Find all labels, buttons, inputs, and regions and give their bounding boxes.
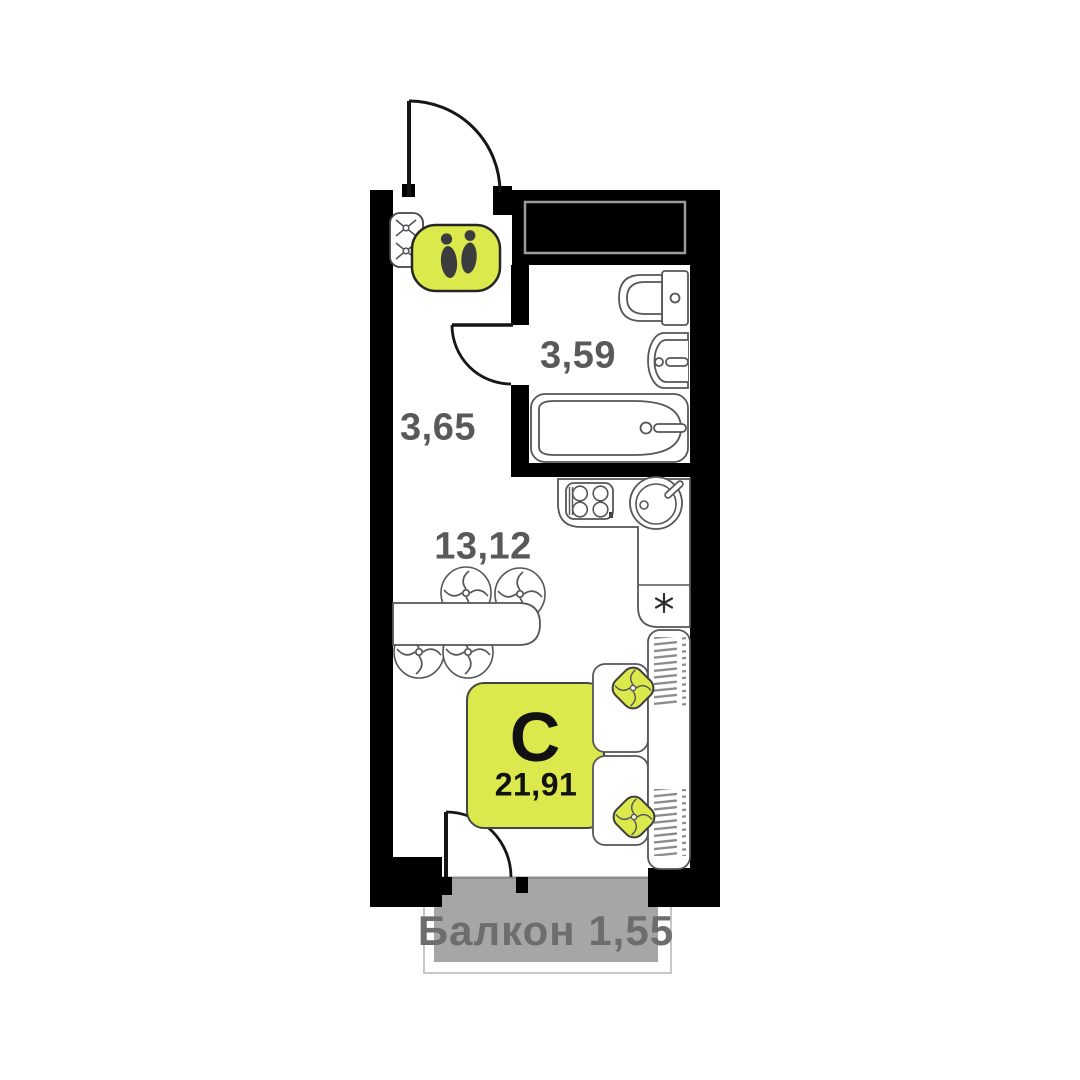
wall-left [370,190,393,857]
stove [566,483,613,519]
balcony-area-label: Балкон 1,55 [418,907,674,955]
hallway-area-label: 3,65 [400,407,476,450]
wall-bottom-right-block [648,868,720,907]
hangers-hatch [654,789,686,856]
dining-table [393,603,540,645]
bathtub [531,394,688,462]
toilet [619,271,688,325]
apartment-type-letter: С [510,697,561,777]
bathroom-door [452,325,513,384]
wall-right [690,190,720,868]
entrance-mat [412,225,500,291]
balcony-door-jamb-right [516,877,528,893]
wall-bathroom-lower [511,385,529,463]
bathroom-area-label: 3,59 [540,335,616,378]
wall-bathroom-upper [511,265,529,325]
balcony-door-jamb-left [439,877,452,895]
kitchen-sink [630,477,682,529]
wall-bathroom-bottom [511,463,690,477]
wall-bottom-left-block [370,857,442,907]
hangers-hatch [654,637,686,707]
total-area-label: 21,91 [495,767,578,804]
wardrobe [648,630,690,869]
floor-plan: 3,59 3,65 13,12 С 21,91 Балкон 1,55 [0,0,1080,1080]
ventilation-shaft [525,202,685,253]
bathroom-sink [648,333,688,388]
living-kitchen-area-label: 13,12 [434,526,532,569]
entrance-door-jamb-right [493,186,512,215]
entrance-door [409,101,500,196]
